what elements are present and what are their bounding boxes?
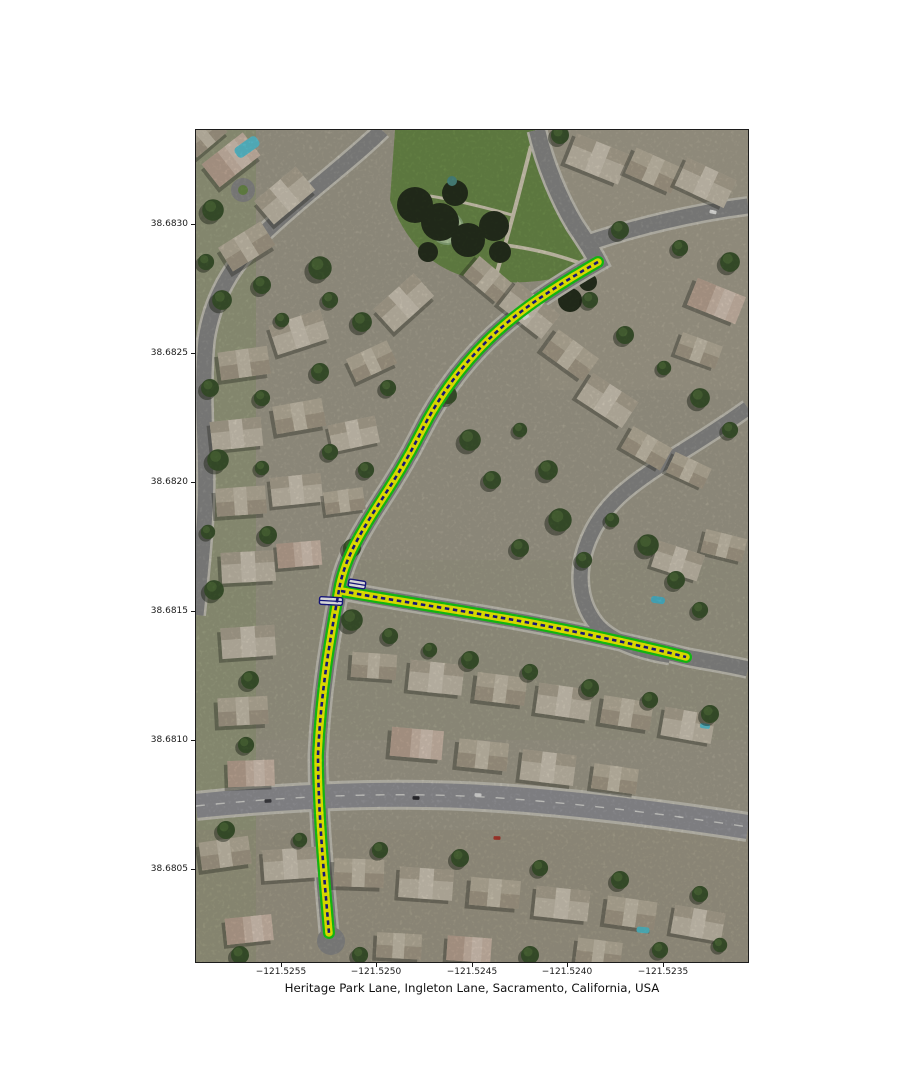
y-tick-label: 38.6805 xyxy=(100,863,188,875)
map-axes xyxy=(195,129,749,963)
x-tick-label: −121.5240 xyxy=(527,966,607,978)
x-tick-label: −121.5245 xyxy=(432,966,512,978)
y-tick-label: 38.6810 xyxy=(100,734,188,746)
y-tick-label: 38.6820 xyxy=(100,476,188,488)
x-tick-label: −121.5255 xyxy=(241,966,321,978)
y-tick-label: 38.6825 xyxy=(100,347,188,359)
x-tick-label: −121.5235 xyxy=(623,966,703,978)
figure-canvas: 38.6830 38.6825 38.6820 38.6815 38.6810 … xyxy=(0,0,922,1080)
satellite-basemap xyxy=(196,130,748,962)
x-tick-label: −121.5250 xyxy=(336,966,416,978)
y-tick-label: 38.6830 xyxy=(100,218,188,230)
plot-title: Heritage Park Lane, Ingleton Lane, Sacra… xyxy=(196,981,748,996)
photo-grain xyxy=(196,130,748,962)
y-tick-label: 38.6815 xyxy=(100,605,188,617)
